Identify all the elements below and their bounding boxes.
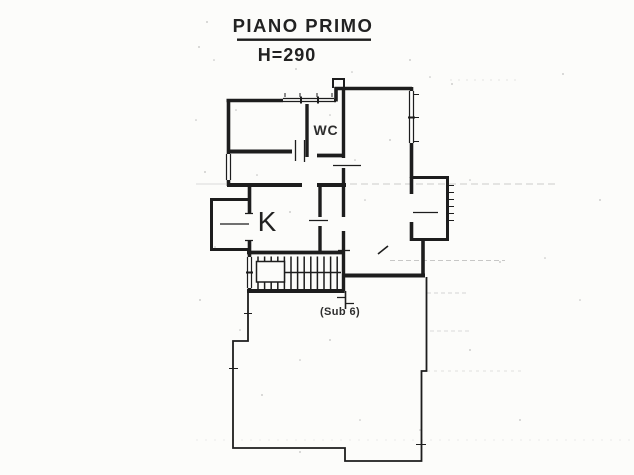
balcony-left <box>210 198 253 251</box>
stair-landing <box>257 262 285 283</box>
wc-door-jambs <box>296 140 305 162</box>
lower-floor-outline <box>229 277 427 461</box>
sub-annotation: (Sub 6) <box>320 306 360 318</box>
speckles <box>195 21 601 453</box>
title-block: PIANO PRIMO H=290 <box>233 15 374 65</box>
plan-title: PIANO PRIMO <box>233 15 374 36</box>
pen-mark <box>378 246 388 254</box>
height-label: H=290 <box>258 45 317 65</box>
exterior-walls <box>227 79 426 292</box>
floor-plan-sheet: PIANO PRIMO H=290 <box>0 0 634 475</box>
window-symbols <box>225 91 420 288</box>
stair-block <box>257 257 342 290</box>
door-marks <box>296 140 389 309</box>
room-label-kitchen: K <box>258 206 277 237</box>
title-underline <box>237 39 371 41</box>
balcony-right <box>411 176 454 241</box>
interior-walls <box>228 87 344 291</box>
room-label-wc: WC <box>314 122 339 138</box>
floor-plan-drawing: PIANO PRIMO H=290 <box>0 0 634 475</box>
